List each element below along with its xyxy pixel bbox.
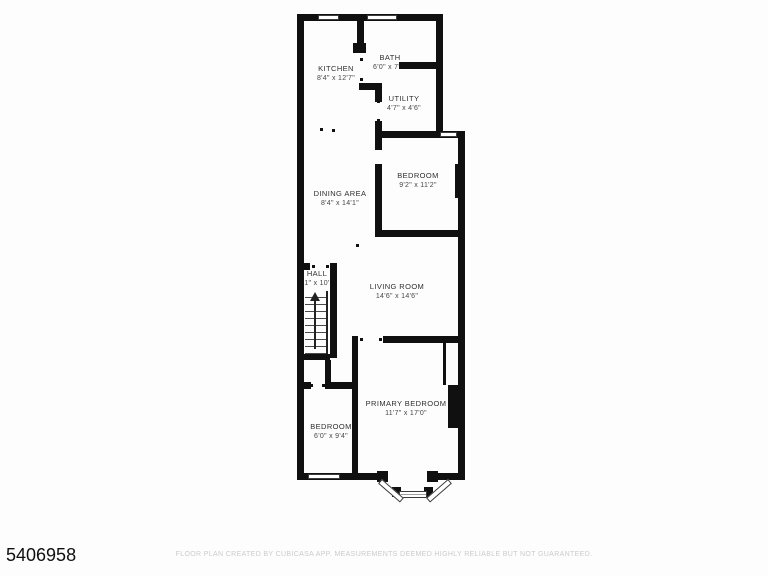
wall [375, 230, 465, 237]
stairs-up-arrow-icon [310, 292, 320, 301]
wall [297, 14, 304, 480]
wall [436, 14, 443, 138]
wall [297, 263, 310, 270]
wall [399, 62, 436, 69]
stairs-up-arrow-icon [314, 301, 316, 349]
wall [443, 343, 446, 385]
door-marker [379, 338, 382, 341]
wall [455, 164, 465, 198]
door-marker [377, 100, 380, 103]
door-marker [360, 338, 363, 341]
window [440, 132, 457, 137]
door-marker [320, 128, 323, 131]
door-marker [312, 265, 315, 268]
wall [383, 336, 465, 343]
door-marker [360, 78, 363, 81]
door-marker [322, 384, 325, 387]
door-marker [332, 129, 335, 132]
room-label-living-room: LIVING ROOM 14'6" x 14'6" [357, 282, 437, 301]
wall [375, 131, 436, 138]
wall [353, 43, 366, 53]
wall [352, 336, 358, 480]
window [318, 15, 339, 20]
door-marker [326, 265, 329, 268]
bay-corner [427, 471, 438, 482]
door-marker [377, 146, 380, 149]
door-marker [360, 58, 363, 61]
wall [330, 263, 337, 358]
door-marker [377, 119, 380, 122]
floor-plan-page: KITCHEN 8'4" x 12'7" BATH 6'0" x 7'5" UT… [0, 0, 768, 576]
window [308, 474, 340, 479]
stair-rail [326, 291, 328, 357]
wall [297, 382, 311, 389]
door-marker [310, 384, 313, 387]
listing-id: 5406958 [6, 545, 76, 566]
door-marker [377, 165, 380, 168]
room-label-bedroom: BEDROOM 9'2" x 11'2" [378, 171, 458, 190]
wall [375, 164, 382, 237]
room-label-dining-area: DINING AREA 8'4" x 14'1" [300, 189, 380, 208]
disclaimer-text: FLOOR PLAN CREATED BY CUBICASA APP. MEAS… [0, 551, 768, 558]
door-marker [356, 244, 359, 247]
wall [448, 385, 465, 428]
window [367, 15, 397, 20]
